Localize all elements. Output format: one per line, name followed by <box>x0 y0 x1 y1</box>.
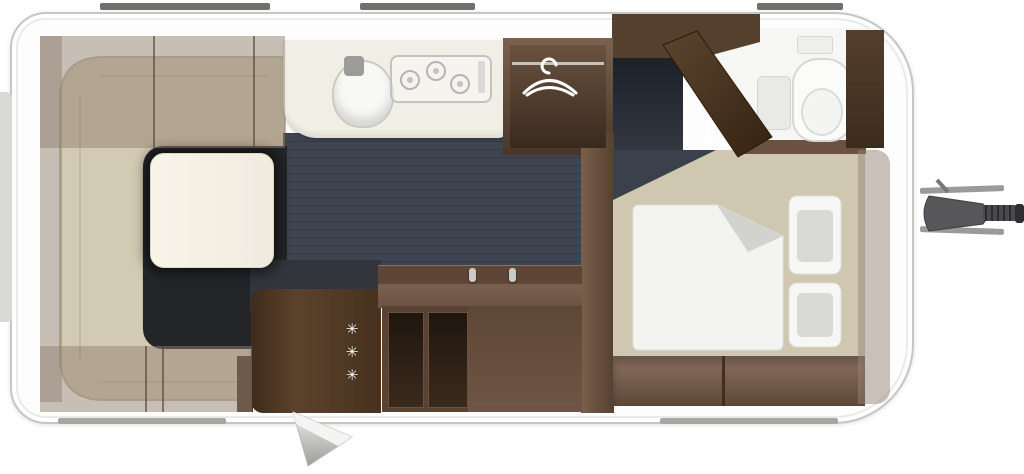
hitch-coupling <box>1015 204 1024 223</box>
tow-hitch <box>920 180 1024 235</box>
roof-window-bar <box>360 3 475 10</box>
roof-window-bar <box>100 3 270 10</box>
bathroom-door <box>663 31 772 157</box>
side-window-bar <box>58 418 226 424</box>
bed-pillow <box>789 283 841 347</box>
roof-window-bar <box>757 3 843 10</box>
hitch-drawbar <box>924 196 988 231</box>
side-window-bar <box>660 418 838 424</box>
caravan-floorplan: ✳ ✳ ✳ <box>0 0 1024 474</box>
bed-pillow <box>789 196 841 274</box>
bedroom-floor-wedge <box>613 150 716 200</box>
hanger-icon <box>524 59 576 95</box>
